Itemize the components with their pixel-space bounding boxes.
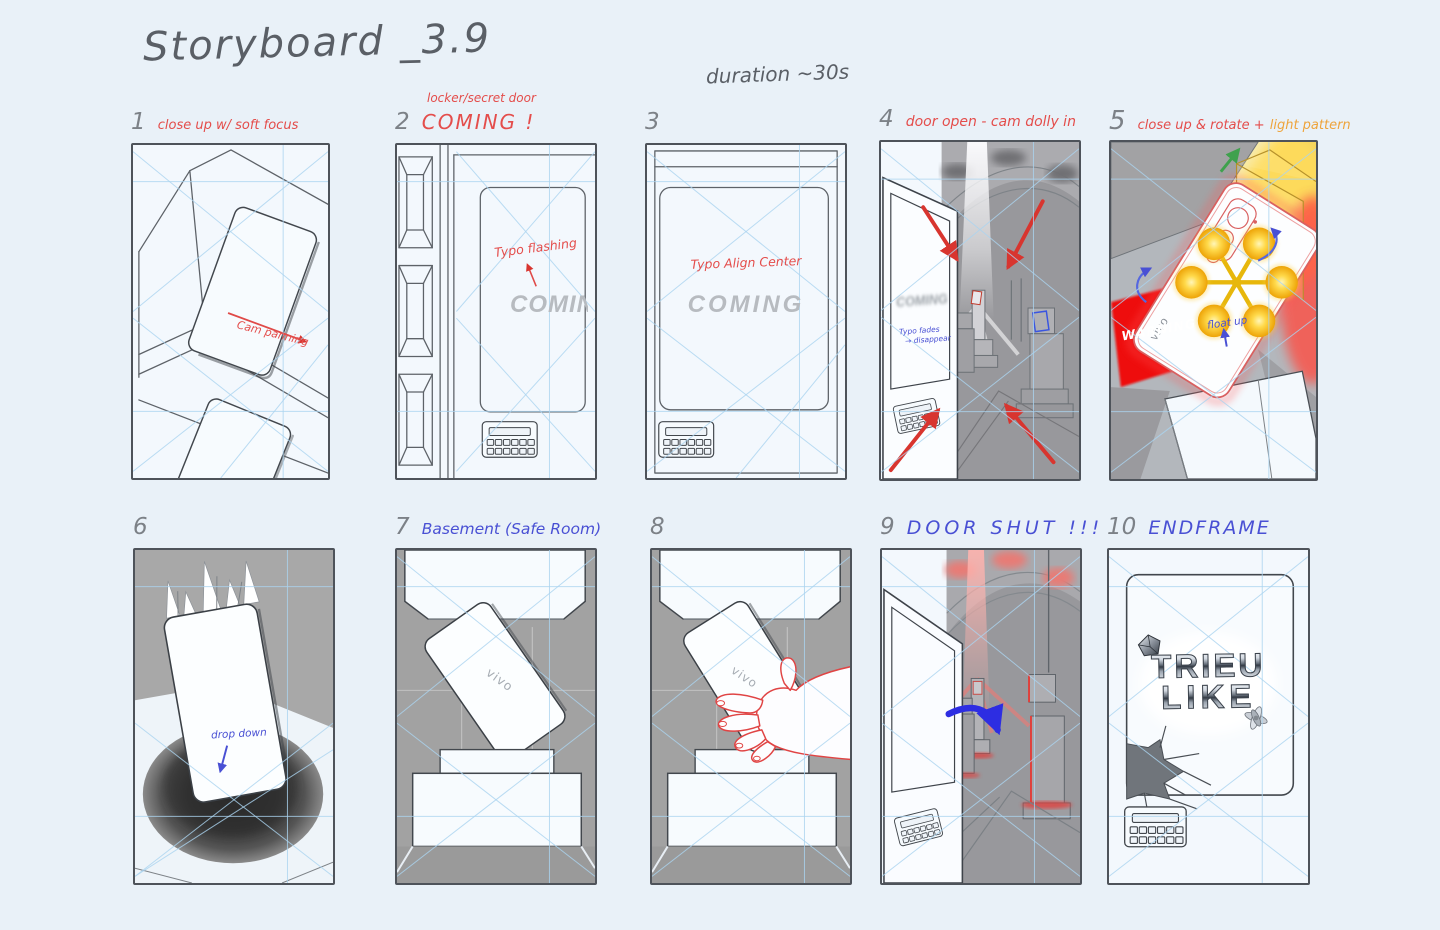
frame-number: 10 bbox=[1107, 514, 1136, 540]
storyboard-frame-8: 8 bbox=[650, 548, 852, 885]
frame-header: 3 bbox=[645, 109, 667, 135]
storyboard-frame-6: 6 drop down bbox=[133, 548, 335, 885]
storyboard-frame-4: 4 door open - cam dolly in bbox=[879, 140, 1081, 481]
frame-number: 6 bbox=[133, 514, 148, 540]
storyboard-frame-3: 3 Typo Align Center COMING bbox=[645, 143, 847, 480]
guide-lines bbox=[135, 550, 333, 883]
storyboard-frame-5: 5 close up & rotate + light pattern bbox=[1109, 140, 1318, 481]
frame-label: close up & rotate + bbox=[1138, 118, 1265, 133]
guide-lines bbox=[652, 550, 850, 883]
frame-number: 8 bbox=[650, 514, 665, 540]
frame-label: Basement (Safe Room) bbox=[422, 520, 601, 538]
storyboard-canvas: Storyboard _3.9 duration ~30s 1 close up… bbox=[0, 0, 1440, 930]
frame-header: 7 Basement (Safe Room) bbox=[395, 514, 601, 540]
frame-header: 6 bbox=[133, 514, 155, 540]
storyboard-frame-7: 7 Basement (Safe Room) vivo bbox=[395, 548, 597, 885]
frame-label: door open - cam dolly in bbox=[906, 114, 1076, 130]
frame-number: 3 bbox=[645, 109, 660, 135]
guide-lines bbox=[882, 550, 1080, 883]
trieu-like-logo: TRIEU LIKE bbox=[1108, 648, 1308, 714]
storyboard-frame-9: 9 DOOR SHUT !!! bbox=[880, 548, 1082, 885]
coming-typo: COMING bbox=[510, 291, 588, 319]
frame-header: 8 bbox=[650, 514, 672, 540]
frame-label-2: light pattern bbox=[1270, 118, 1351, 133]
frame-number: 4 bbox=[879, 106, 894, 132]
frame-label: DOOR SHUT !!! bbox=[907, 517, 1104, 539]
frame-number: 7 bbox=[395, 514, 410, 540]
storyboard-frame-2: locker/secret door 2 COMING ! bbox=[395, 143, 597, 480]
frame-header: 10 ENDFRAME bbox=[1107, 514, 1271, 540]
logo-line-2: LIKE bbox=[1109, 680, 1309, 715]
coming-typo: COMING bbox=[647, 291, 845, 319]
frame-header: 1 close up w/ soft focus bbox=[131, 109, 298, 135]
frame-number: 5 bbox=[1109, 106, 1126, 136]
frame-top-label: locker/secret door bbox=[427, 91, 536, 105]
frame-label: COMING ! bbox=[422, 110, 536, 134]
frame-label: ENDFRAME bbox=[1148, 517, 1270, 539]
frame-number: 2 bbox=[395, 109, 410, 135]
guide-lines bbox=[1109, 550, 1308, 883]
guide-lines bbox=[397, 550, 595, 883]
frame-header: 9 DOOR SHUT !!! bbox=[880, 514, 1103, 540]
page-title: Storyboard _3.9 bbox=[142, 15, 491, 70]
frame-header: 4 door open - cam dolly in bbox=[879, 106, 1076, 132]
storyboard-frame-1: 1 close up w/ soft focus bbox=[131, 143, 330, 480]
storyboard-frame-10: 10 ENDFRAME bbox=[1107, 548, 1310, 885]
guide-lines bbox=[133, 145, 328, 478]
frame-number: 1 bbox=[131, 109, 146, 135]
guide-lines bbox=[881, 142, 1079, 479]
duration-note: duration ~30s bbox=[706, 60, 850, 89]
frame-label: close up w/ soft focus bbox=[158, 118, 299, 133]
frame-header: 5 close up & rotate + light pattern bbox=[1109, 106, 1351, 136]
frame-number: 9 bbox=[880, 514, 895, 540]
guide-lines bbox=[1111, 142, 1316, 479]
frame-header: 2 COMING ! bbox=[395, 109, 535, 135]
